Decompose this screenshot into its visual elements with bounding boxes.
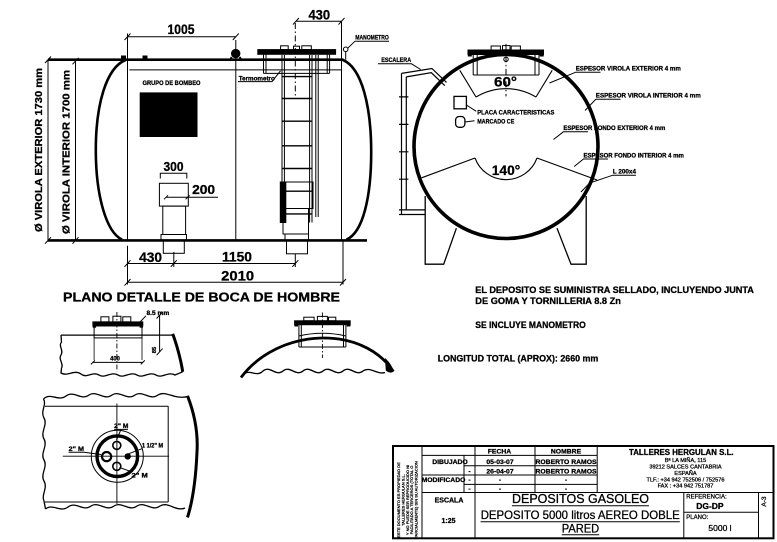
svg-text:-: - — [468, 486, 470, 493]
svg-text:2010: 2010 — [221, 269, 254, 284]
svg-text:PLANO DETALLE DE BOCA DE HOMBR: PLANO DETALLE DE BOCA DE HOMBRE — [63, 290, 340, 305]
svg-text:-: - — [468, 468, 470, 475]
svg-text:PARED: PARED — [562, 522, 600, 536]
svg-text:PARCIALMENTE) SIN SU AUTORIZAC: PARCIALMENTE) SIN SU AUTORIZACION — [413, 461, 418, 539]
svg-text:NOMBRE: NOMBRE — [551, 449, 582, 456]
svg-text:140°: 140° — [492, 162, 521, 178]
svg-text:-: - — [468, 477, 470, 484]
svg-text:ESCALERA: ESCALERA — [381, 57, 411, 64]
svg-text:ROBERTO RAMOS: ROBERTO RAMOS — [535, 459, 597, 466]
svg-text:400: 400 — [110, 356, 120, 362]
svg-text:FAX : +34 942 751787: FAX : +34 942 751787 — [658, 484, 714, 490]
svg-text:MARCADO CE: MARCADO CE — [477, 119, 515, 126]
svg-text:430: 430 — [139, 250, 162, 265]
svg-text:A-3: A-3 — [761, 496, 768, 507]
svg-text:ESPESOR FONDO EXTERIOR 4 mm: ESPESOR FONDO EXTERIOR 4 mm — [563, 125, 665, 132]
svg-text:L 200x4: L 200x4 — [613, 169, 637, 176]
svg-text:1 1/2" M: 1 1/2" M — [142, 443, 163, 449]
svg-text:REFERENCIA:: REFERENCIA: — [686, 495, 727, 501]
svg-text:8.5 mm: 8.5 mm — [147, 311, 170, 317]
svg-text:EL DEPOSITO SE SUMINISTRA SELL: EL DEPOSITO SE SUMINISTRA SELLADO, INCLU… — [475, 285, 754, 295]
svg-text:5000 l: 5000 l — [708, 523, 731, 533]
svg-text:60°: 60° — [494, 74, 517, 90]
svg-text:MODIFICADO: MODIFICADO — [422, 477, 466, 484]
svg-text:GRUPO DE BOMBEO: GRUPO DE BOMBEO — [143, 80, 201, 87]
svg-text:TALLERES HERGULAN S.L.: TALLERES HERGULAN S.L. — [629, 448, 734, 457]
svg-text:Ø VIROLA INTERIOR 1700 mm: Ø VIROLA INTERIOR 1700 mm — [62, 70, 73, 234]
svg-text:Bª LA MIÑA, 115: Bª LA MIÑA, 115 — [665, 457, 706, 464]
svg-text:DIBUJADO: DIBUJADO — [432, 459, 468, 466]
svg-text:FECHA: FECHA — [488, 449, 512, 456]
svg-text:200: 200 — [192, 183, 215, 197]
svg-text:39212 SALCES CANTABRIA: 39212 SALCES CANTABRIA — [649, 465, 722, 471]
svg-text:05-03-07: 05-03-07 — [486, 459, 513, 466]
svg-text:85: 85 — [152, 346, 158, 353]
svg-text:DEPOSITOS GASOLEO: DEPOSITOS GASOLEO — [512, 492, 649, 506]
svg-text:1:25: 1:25 — [441, 518, 455, 525]
svg-text:TLF.: +34 942 752506 / 752576: TLF.: +34 942 752506 / 752576 — [647, 477, 725, 483]
svg-text:ESPAÑA: ESPAÑA — [674, 470, 697, 477]
svg-text:ESCALA: ESCALA — [435, 498, 464, 505]
svg-text:DEPOSITO 5000 litros AEREO DOB: DEPOSITO 5000 litros AEREO DOBLE — [481, 508, 680, 522]
svg-text:ESPESOR FONDO INTERIOR 4 mm: ESPESOR FONDO INTERIOR 4 mm — [584, 152, 685, 159]
svg-text:430: 430 — [308, 8, 330, 23]
svg-text:PLACA CARACTERISTICAS: PLACA CARACTERISTICAS — [477, 109, 555, 116]
svg-text:ESPESOR VIROLA INTERIOR 4 mm: ESPESOR VIROLA INTERIOR 4 mm — [596, 93, 701, 100]
svg-text:Ø VIROLA EXTERIOR 1730 mm: Ø VIROLA EXTERIOR 1730 mm — [34, 68, 45, 232]
svg-text:SE INCLUYE MANOMETRO: SE INCLUYE MANOMETRO — [475, 320, 586, 330]
svg-text:26-04-07: 26-04-07 — [486, 468, 513, 475]
svg-text:-: - — [565, 477, 567, 484]
svg-text:1005: 1005 — [168, 22, 195, 37]
svg-text:PLANO:: PLANO: — [686, 515, 708, 521]
svg-text:-: - — [499, 477, 501, 484]
svg-text:DG-DP: DG-DP — [696, 501, 724, 511]
svg-text:-: - — [499, 486, 501, 493]
svg-text:DE GOMA Y TORNILLERIA 8.8 Zn: DE GOMA Y TORNILLERIA 8.8 Zn — [475, 296, 621, 306]
svg-text:ESPESOR VIROLA EXTERIOR 4 mm: ESPESOR VIROLA EXTERIOR 4 mm — [576, 66, 681, 73]
svg-text:2" M: 2" M — [132, 474, 148, 480]
svg-text:LONGITUD TOTAL (APROX): 2660 m: LONGITUD TOTAL (APROX): 2660 mm — [438, 354, 599, 364]
svg-text:300: 300 — [164, 160, 184, 174]
svg-text:MANOMETRO: MANOMETRO — [355, 35, 389, 42]
svg-text:1150: 1150 — [222, 250, 252, 265]
svg-text:ROBERTO RAMOS: ROBERTO RAMOS — [535, 468, 597, 475]
